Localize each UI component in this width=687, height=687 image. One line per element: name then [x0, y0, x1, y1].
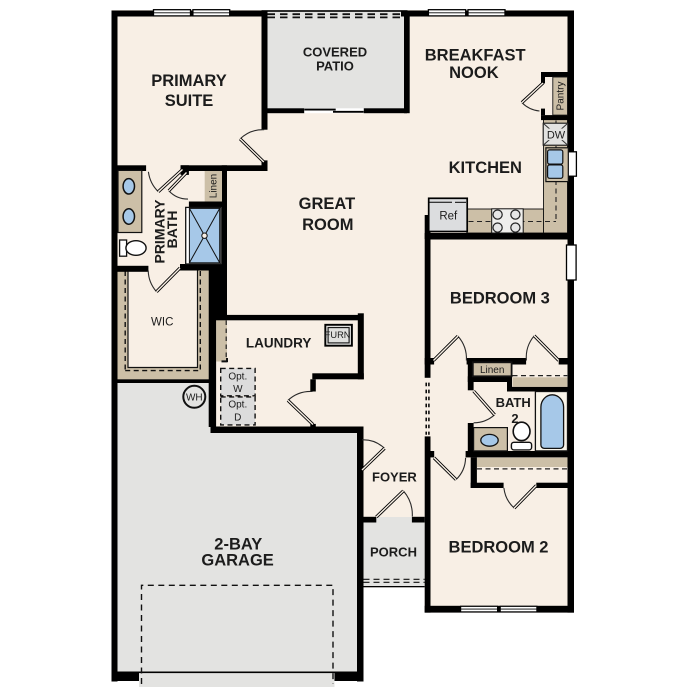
svg-text:W: W [233, 384, 243, 395]
svg-text:FOYER: FOYER [372, 470, 417, 485]
svg-text:WH: WH [186, 392, 203, 403]
svg-text:GREAT: GREAT [299, 195, 356, 213]
svg-text:FURN: FURN [325, 330, 351, 340]
svg-text:GARAGE: GARAGE [201, 552, 273, 570]
svg-text:2: 2 [511, 411, 518, 426]
svg-text:Linen: Linen [480, 365, 504, 376]
svg-text:D: D [234, 412, 241, 423]
svg-text:LAUNDRY: LAUNDRY [246, 336, 312, 351]
svg-text:Linen: Linen [209, 174, 220, 198]
svg-text:Ref: Ref [439, 210, 458, 222]
svg-text:BREAKFAST: BREAKFAST [425, 46, 526, 64]
svg-text:BEDROOM 2: BEDROOM 2 [449, 538, 549, 556]
svg-text:PATIO: PATIO [316, 59, 354, 74]
svg-text:Pantry: Pantry [556, 82, 567, 111]
svg-text:BATH: BATH [496, 395, 531, 410]
svg-text:ROOM: ROOM [302, 216, 353, 234]
svg-text:PORCH: PORCH [370, 545, 417, 560]
svg-text:BEDROOM 3: BEDROOM 3 [450, 290, 550, 308]
svg-text:BATH: BATH [164, 210, 180, 248]
svg-text:SUITE: SUITE [165, 92, 214, 110]
svg-text:Opt.: Opt. [228, 400, 247, 411]
svg-text:PRIMARY: PRIMARY [151, 72, 226, 90]
svg-text:NOOK: NOOK [449, 64, 499, 82]
svg-text:Opt.: Opt. [228, 371, 247, 382]
svg-text:DW: DW [547, 129, 566, 141]
svg-text:COVERED: COVERED [303, 44, 367, 59]
svg-text:KITCHEN: KITCHEN [449, 159, 522, 177]
svg-text:WIC: WIC [151, 316, 173, 328]
